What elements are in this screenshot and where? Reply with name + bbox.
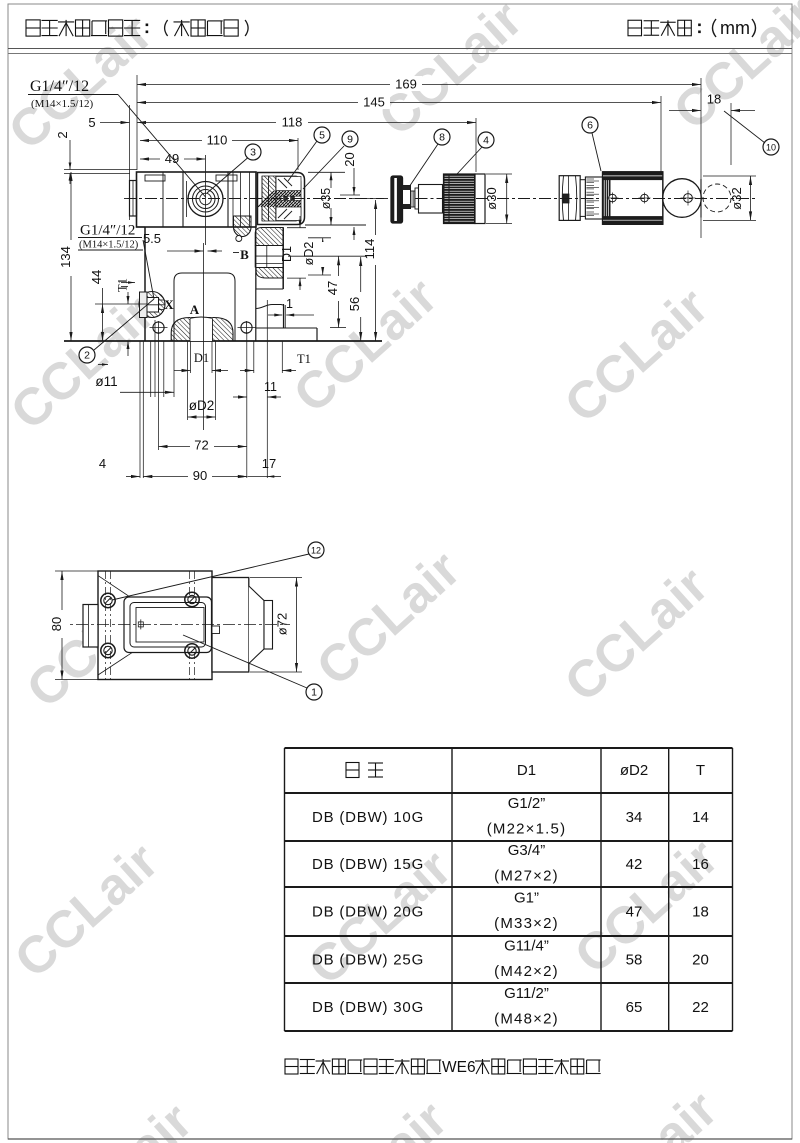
svg-text:T1: T1 <box>297 352 311 366</box>
svg-text:5: 5 <box>88 115 95 130</box>
svg-text:DB (DBW) 15G: DB (DBW) 15G <box>312 856 424 873</box>
svg-text:X: X <box>164 297 174 312</box>
svg-text:G1/4″/12: G1/4″/12 <box>80 223 135 239</box>
svg-text:D1: D1 <box>517 762 536 779</box>
svg-text:34: 34 <box>626 809 643 826</box>
svg-text:18: 18 <box>707 92 721 107</box>
svg-text:DB (DBW) 10G: DB (DBW) 10G <box>312 809 424 826</box>
svg-text:118: 118 <box>282 115 303 130</box>
svg-text:B: B <box>240 247 249 262</box>
svg-text:6: 6 <box>587 120 593 132</box>
svg-text:56: 56 <box>347 297 362 311</box>
svg-text:11: 11 <box>264 380 277 394</box>
svg-text:(M22×1.5): (M22×1.5) <box>487 821 567 838</box>
svg-text:134: 134 <box>58 246 73 268</box>
svg-text:(M48×2): (M48×2) <box>494 1011 559 1028</box>
svg-text:(M14×1.5/12): (M14×1.5/12) <box>79 240 139 251</box>
svg-text:90: 90 <box>193 468 207 483</box>
svg-text:1: 1 <box>311 687 317 699</box>
svg-text:1: 1 <box>286 297 293 311</box>
svg-text:9: 9 <box>347 134 353 146</box>
svg-text:169: 169 <box>395 77 417 92</box>
svg-text:(M42×2): (M42×2) <box>494 963 559 980</box>
svg-text:8: 8 <box>439 132 445 144</box>
svg-text:16: 16 <box>692 856 709 873</box>
svg-text:G11/2”: G11/2” <box>504 985 549 1002</box>
svg-text:114: 114 <box>362 239 377 260</box>
svg-text:D1: D1 <box>194 351 209 365</box>
svg-text:G1/4″/12: G1/4″/12 <box>30 78 89 95</box>
svg-text:mm: mm <box>720 18 750 38</box>
svg-text:G3/4”: G3/4” <box>508 842 546 859</box>
svg-text:58: 58 <box>626 952 643 969</box>
svg-text:20: 20 <box>342 152 357 166</box>
svg-text:3: 3 <box>250 147 256 159</box>
svg-text:øD2: øD2 <box>189 398 215 413</box>
svg-text:T: T <box>696 762 705 779</box>
svg-text:22: 22 <box>692 999 709 1016</box>
svg-text:G1/2”: G1/2” <box>508 795 546 812</box>
svg-text:(M33×2): (M33×2) <box>494 915 559 932</box>
svg-text:D1: D1 <box>280 246 294 262</box>
svg-text:WE6: WE6 <box>442 1059 476 1076</box>
svg-text:DB (DBW) 30G: DB (DBW) 30G <box>312 999 424 1016</box>
svg-text:65: 65 <box>626 999 643 1016</box>
svg-text:145: 145 <box>363 95 385 110</box>
svg-text:øD2: øD2 <box>620 762 648 779</box>
svg-text:12: 12 <box>311 546 321 556</box>
svg-text:DB (DBW) 20G: DB (DBW) 20G <box>312 904 424 921</box>
svg-text:ø11: ø11 <box>95 374 117 389</box>
svg-text:18: 18 <box>692 904 709 921</box>
svg-text:72: 72 <box>194 438 208 453</box>
svg-text:47: 47 <box>626 904 643 921</box>
svg-text:44: 44 <box>89 270 104 284</box>
svg-text:2: 2 <box>84 350 90 362</box>
svg-text:17: 17 <box>262 456 276 471</box>
svg-text:(M14×1.5/12): (M14×1.5/12) <box>31 98 93 110</box>
svg-text:A: A <box>190 302 200 317</box>
svg-text:5.5: 5.5 <box>143 231 161 246</box>
svg-text:ø72: ø72 <box>275 613 290 635</box>
svg-text:5: 5 <box>319 130 325 142</box>
svg-text:øD2: øD2 <box>302 242 316 266</box>
svg-text:110: 110 <box>207 133 228 148</box>
svg-text:20: 20 <box>692 952 709 969</box>
svg-text:4: 4 <box>483 135 489 147</box>
svg-text:G11/4”: G11/4” <box>504 938 549 955</box>
svg-text:42: 42 <box>626 856 643 873</box>
svg-text:2: 2 <box>55 131 70 138</box>
svg-text:(M27×2): (M27×2) <box>494 868 559 885</box>
svg-text:4: 4 <box>99 456 106 471</box>
svg-text:DB (DBW) 25G: DB (DBW) 25G <box>312 952 424 969</box>
svg-text:G1”: G1” <box>514 890 539 907</box>
svg-text:47: 47 <box>325 281 340 295</box>
svg-text:T1: T1 <box>116 278 130 292</box>
svg-text:10: 10 <box>766 143 776 153</box>
svg-text:14: 14 <box>692 809 709 826</box>
svg-text:80: 80 <box>49 617 64 631</box>
